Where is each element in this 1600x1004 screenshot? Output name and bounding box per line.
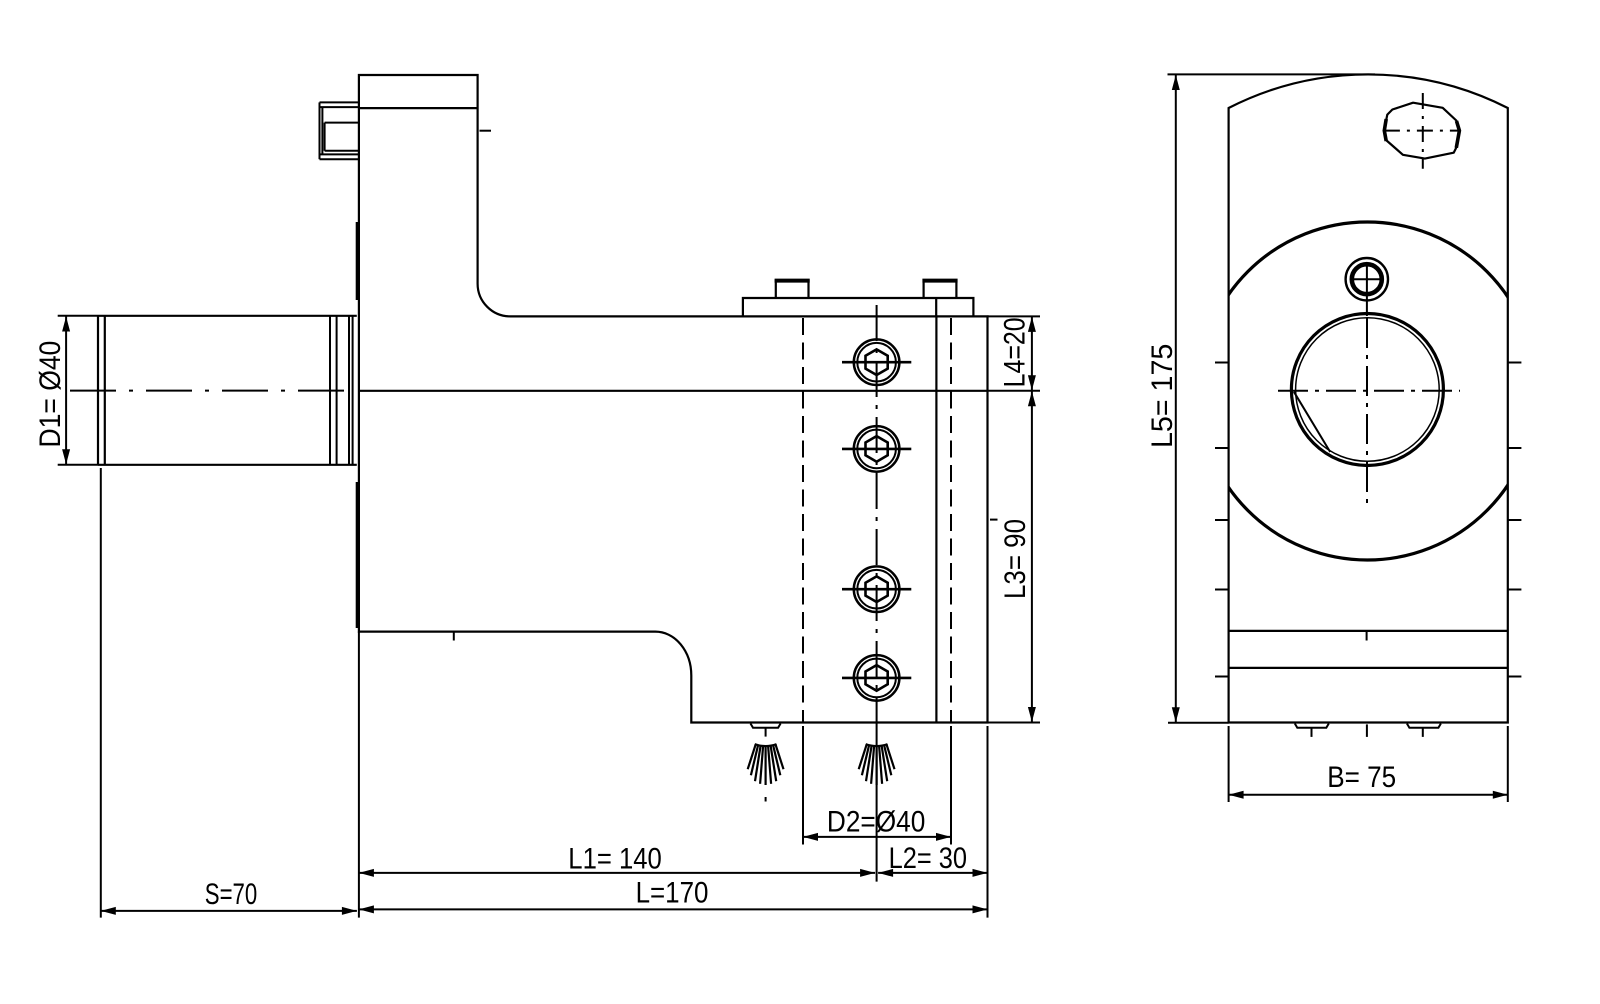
- svg-text:L3= 90: L3= 90: [999, 519, 1032, 599]
- svg-text:L1= 140: L1= 140: [568, 842, 662, 875]
- svg-text:S=70: S=70: [205, 878, 258, 911]
- svg-text:D2=Ø40: D2=Ø40: [827, 806, 925, 839]
- svg-text:L2= 30: L2= 30: [889, 842, 967, 875]
- svg-text:D1= Ø40: D1= Ø40: [34, 341, 67, 448]
- svg-text:L=170: L=170: [636, 876, 709, 909]
- svg-text:L5= 175: L5= 175: [1146, 344, 1179, 448]
- svg-text:L4=20: L4=20: [998, 317, 1031, 387]
- svg-text:B= 75: B= 75: [1327, 761, 1396, 794]
